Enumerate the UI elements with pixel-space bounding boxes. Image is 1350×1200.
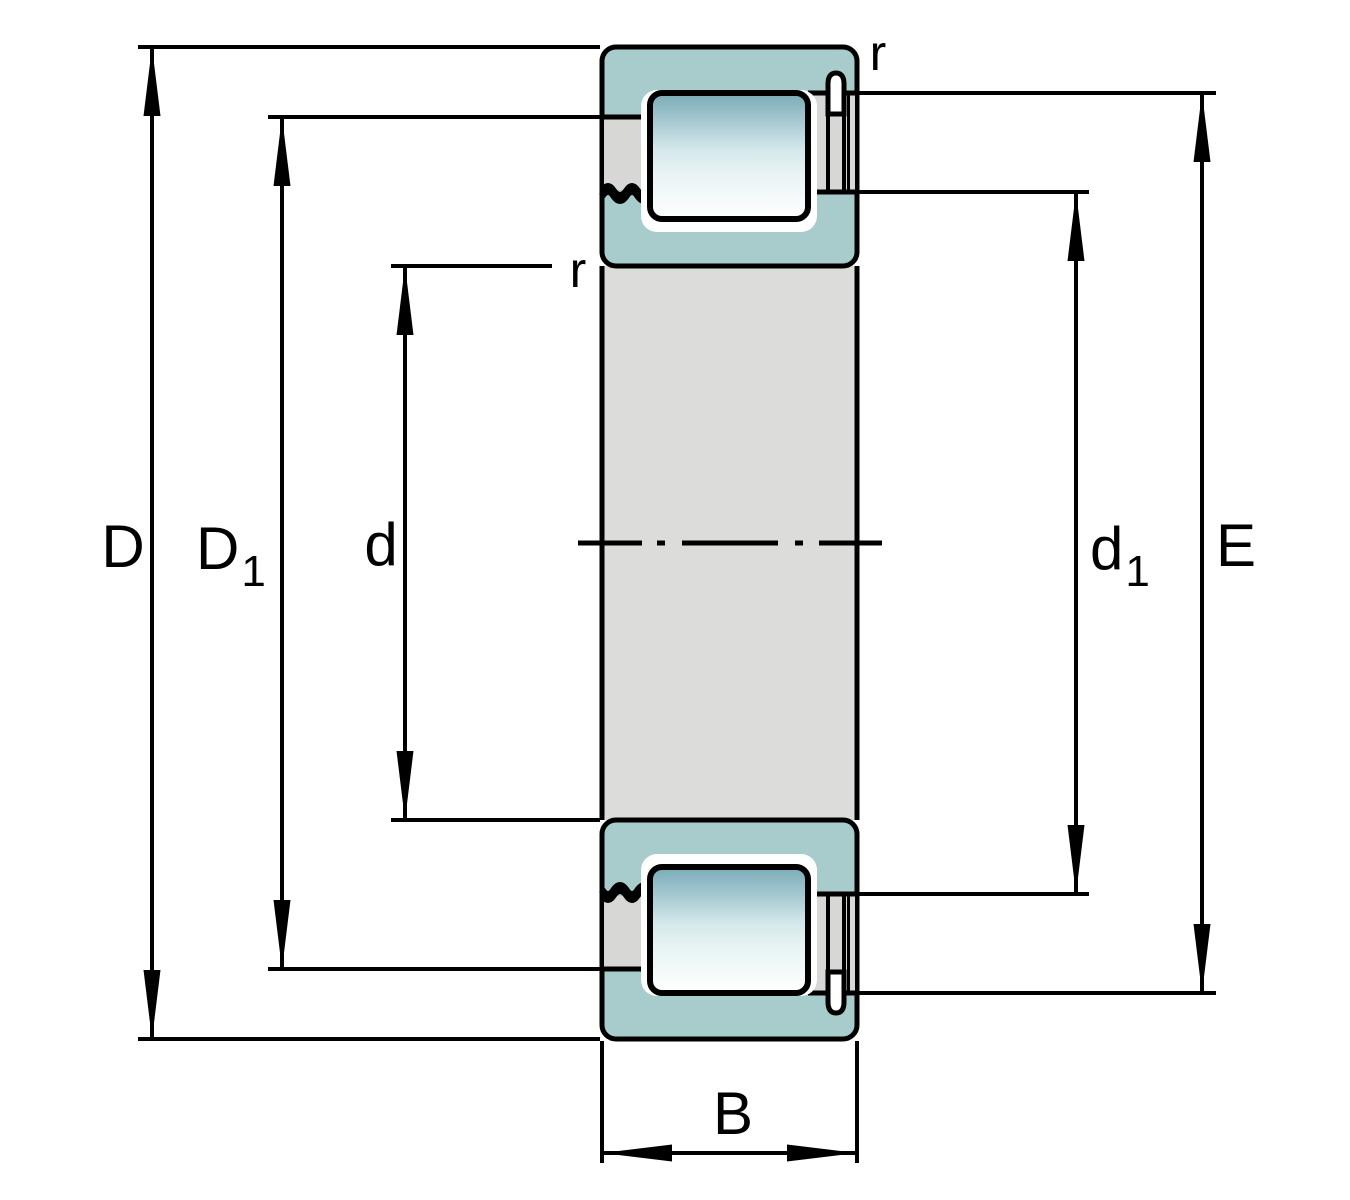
label-D1-subscript: 1 xyxy=(241,547,265,596)
dim-E xyxy=(859,93,1216,993)
dim-d1 xyxy=(859,192,1089,894)
label-d1: d1 xyxy=(1090,519,1150,579)
dim-d xyxy=(391,266,600,820)
label-D: D xyxy=(101,517,144,577)
bearing-dimension-figure: D D1 d d1 E B r r xyxy=(0,0,1350,1200)
label-d1-main: d xyxy=(1090,515,1123,582)
bearing-section-bottom xyxy=(602,820,857,1039)
roller-bottom xyxy=(650,867,808,993)
retaining-ring-bottom xyxy=(828,972,844,1013)
technical-drawing-svg xyxy=(0,0,1350,1200)
label-D1: D1 xyxy=(196,519,266,579)
label-r-inner: r xyxy=(570,245,587,295)
roller-top xyxy=(650,93,808,219)
dim-D1 xyxy=(268,117,600,969)
label-D1-main: D xyxy=(196,515,239,582)
retaining-ring-top xyxy=(828,73,844,114)
label-B: B xyxy=(713,1084,753,1144)
bearing-section-top xyxy=(602,47,857,266)
label-r-outer: r xyxy=(870,28,887,78)
label-d: d xyxy=(364,515,397,575)
label-E: E xyxy=(1216,516,1256,576)
label-d1-subscript: 1 xyxy=(1125,547,1149,596)
